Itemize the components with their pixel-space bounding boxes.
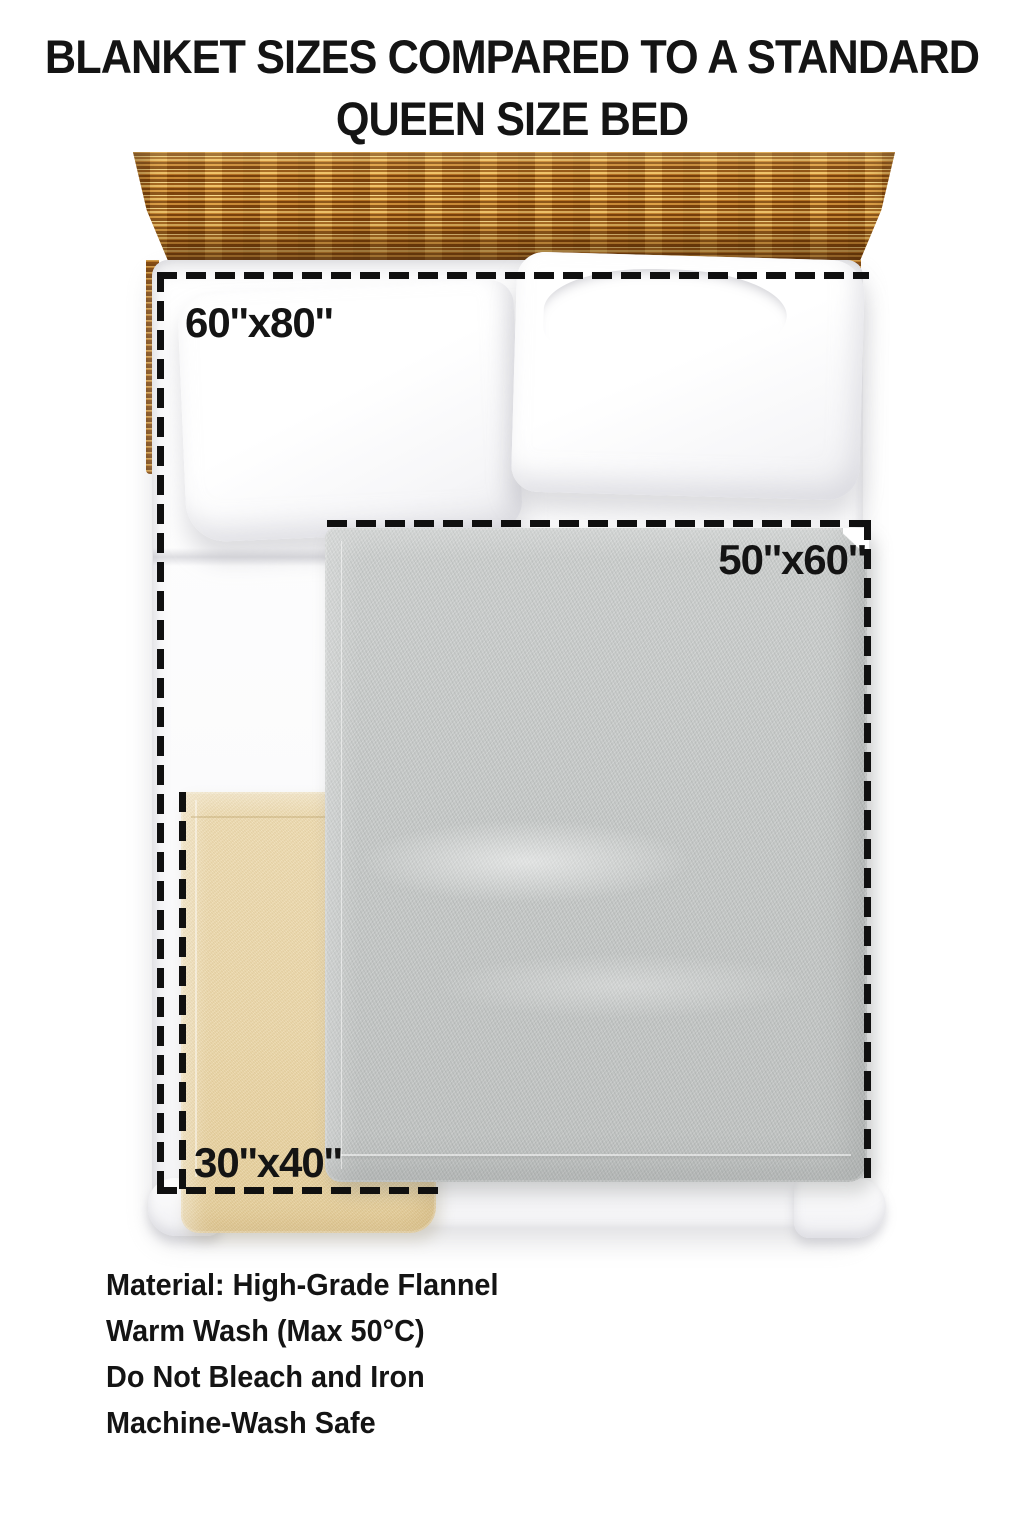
- care-line-bleach: Do Not Bleach and Iron: [106, 1354, 498, 1400]
- sheet-fold-line: [153, 548, 329, 566]
- blanket-size-infographic: BLANKET SIZES COMPARED TO A STANDARD QUE…: [0, 0, 1024, 1536]
- size-label-60x80: 60''x80'': [185, 299, 333, 347]
- size-label-30x40: 30''x40'': [194, 1139, 342, 1187]
- care-line-machine: Machine-Wash Safe: [106, 1400, 498, 1446]
- size-label-50x60: 50''x60'': [718, 536, 866, 584]
- dashed-line-60x80-top: [157, 272, 869, 279]
- dashed-line-30x40-bottom: [157, 1187, 438, 1194]
- pillow-right: [511, 251, 866, 501]
- dashed-line-50x60-right: [864, 520, 871, 1180]
- dashed-line-60x80-left: [157, 272, 164, 1194]
- care-line-material: Material: High-Grade Flannel: [106, 1262, 498, 1308]
- dashed-line-50x60-top: [327, 520, 873, 527]
- care-line-wash: Warm Wash (Max 50°C): [106, 1308, 498, 1354]
- wooden-headboard: [133, 152, 895, 268]
- care-instructions: Material: High-Grade Flannel Warm Wash (…: [106, 1262, 498, 1446]
- dashed-line-30x40-left: [179, 792, 186, 1194]
- bed-sheet-foot-right: [794, 1178, 886, 1238]
- blanket-medium-gray: [325, 528, 867, 1182]
